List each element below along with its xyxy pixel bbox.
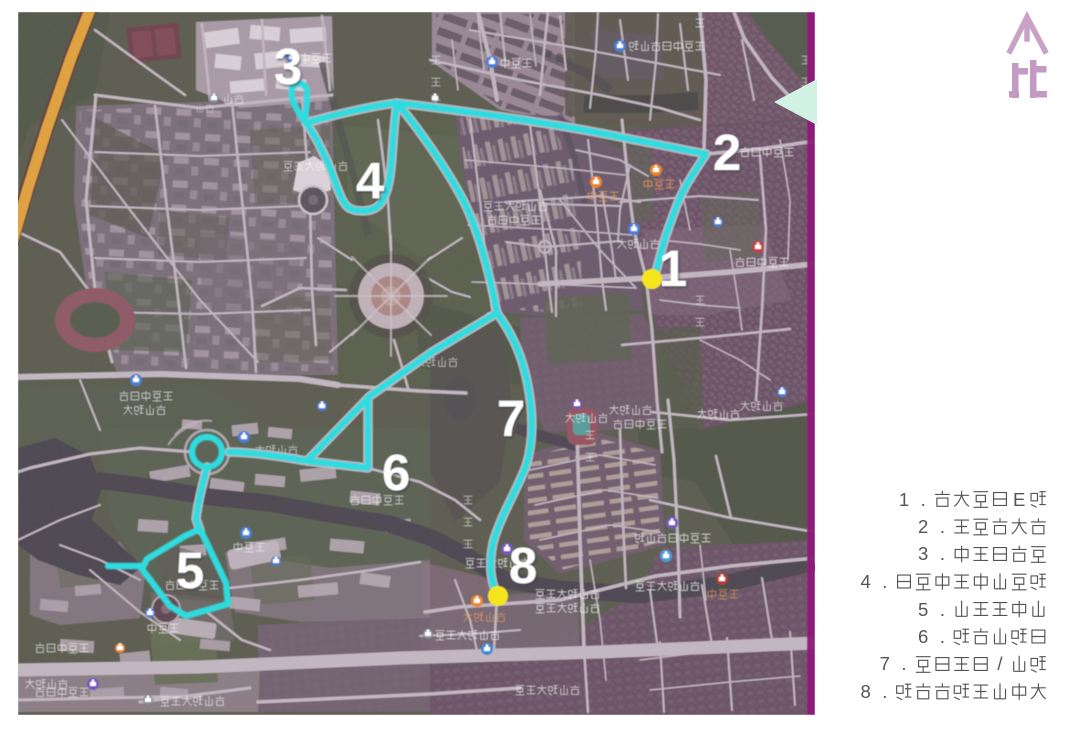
svg-text:4: 4 (356, 152, 385, 209)
svg-text:3: 3 (274, 38, 302, 95)
svg-text:2: 2 (918, 516, 928, 537)
svg-text:.: . (940, 516, 945, 537)
svg-text:5: 5 (176, 542, 204, 599)
svg-text:8: 8 (509, 537, 537, 594)
svg-text:7: 7 (880, 653, 890, 674)
svg-text:8: 8 (860, 681, 870, 702)
svg-text:.: . (940, 543, 945, 564)
svg-text:.: . (882, 681, 887, 702)
svg-text:6: 6 (382, 444, 410, 501)
svg-text:3: 3 (918, 543, 928, 564)
svg-text:.: . (940, 599, 945, 620)
svg-text:.: . (921, 489, 926, 510)
svg-text:.: . (882, 571, 887, 592)
svg-text:1: 1 (899, 489, 909, 510)
svg-text:.: . (901, 653, 906, 674)
svg-text:5: 5 (918, 599, 928, 620)
svg-text:E: E (1013, 489, 1025, 510)
svg-text:6: 6 (918, 626, 928, 647)
svg-text:/: / (997, 653, 1003, 674)
svg-text:.: . (940, 626, 945, 647)
svg-text:2: 2 (713, 124, 741, 181)
svg-text:7: 7 (497, 390, 525, 447)
svg-text:4: 4 (860, 571, 870, 592)
svg-text:1: 1 (659, 240, 687, 297)
